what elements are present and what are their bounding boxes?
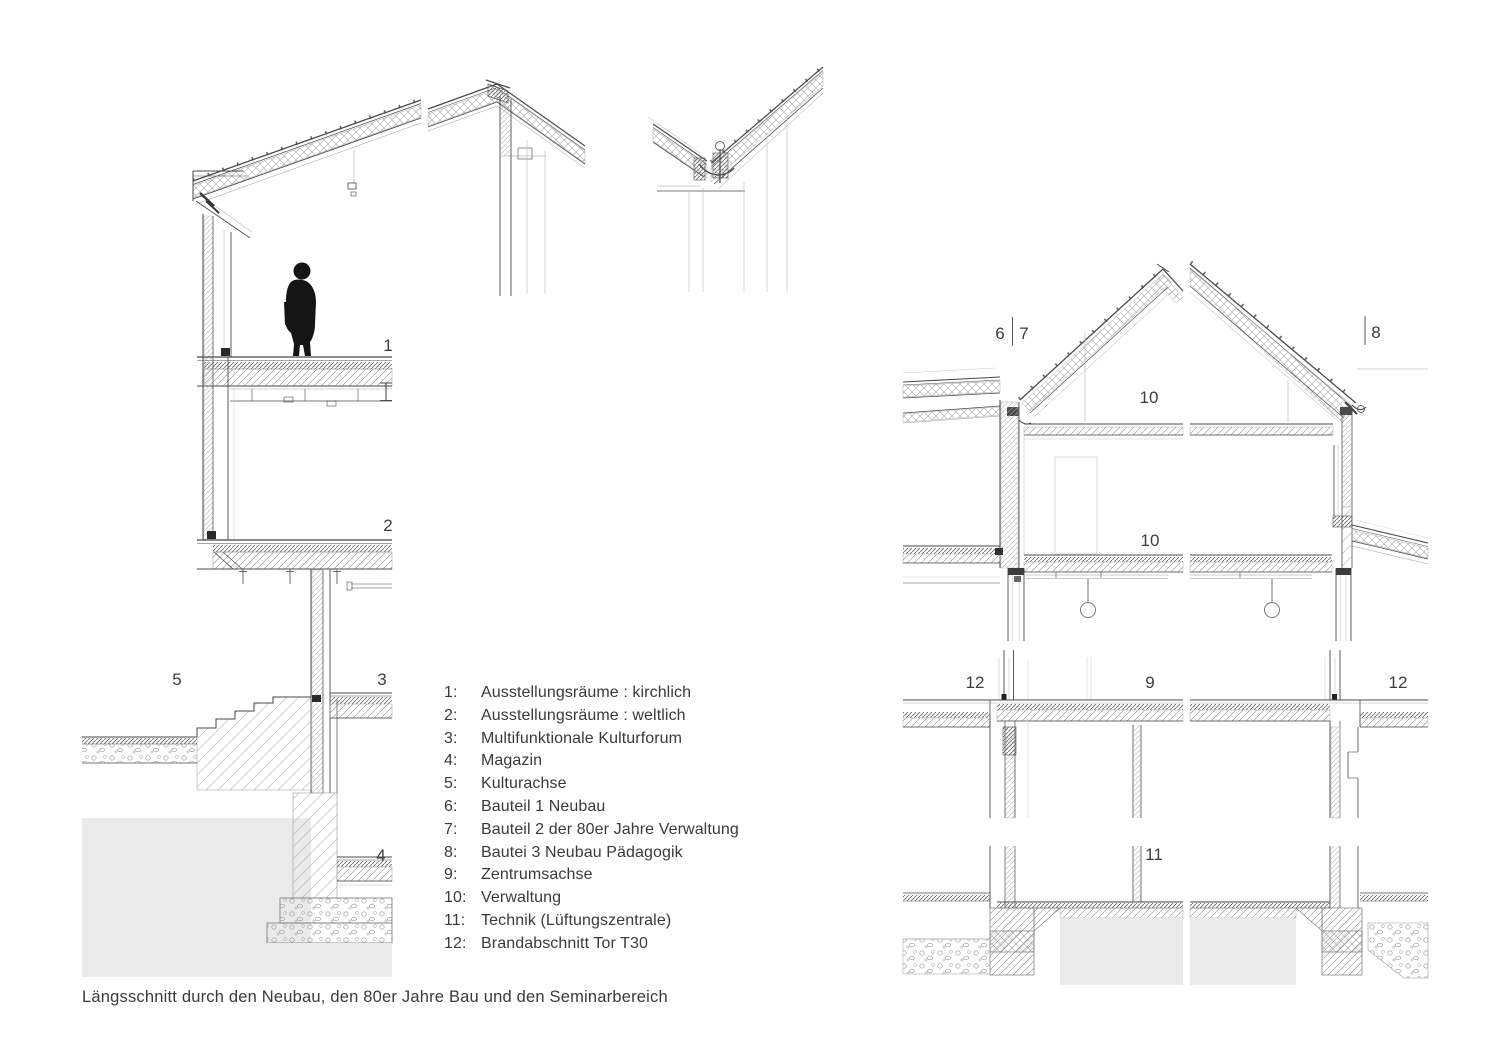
section-drawing: 1 2 3 4 5 6 7 8 10 10 12 9 12 11 (0, 0, 1500, 1048)
section-brandabschnitt (1190, 650, 1428, 985)
pendant-lamp (1265, 603, 1280, 618)
legend-item: 6:Bauteil 1 Neubau (444, 796, 739, 819)
person-silhouette (284, 263, 316, 357)
legend-item-number: 9: (444, 864, 481, 887)
legend-item: 9:Zentrumsachse (444, 864, 739, 887)
section-marker-9: 9 (1145, 673, 1154, 692)
section-marker-8: 8 (1371, 323, 1380, 342)
legend-item-label: Verwaltung (481, 889, 561, 906)
legend-item-label: Kulturachse (481, 775, 567, 792)
legend-item-label: Multifunktionale Kulturforum (481, 730, 682, 747)
legend-item: 10:Verwaltung (444, 887, 739, 910)
legend-item-number: 7: (444, 819, 481, 842)
figure-caption: Längsschnitt durch den Neubau, den 80er … (82, 988, 668, 1007)
valley-detail (648, 66, 823, 292)
legend-item-label: Ausstellungsräume : weltlich (481, 707, 686, 724)
section-marker-10-room: 10 (1141, 531, 1160, 550)
section-bauteil-3 (1190, 262, 1428, 641)
legend-item-label: Magazin (481, 752, 542, 769)
legend-item-number: 2: (444, 705, 481, 728)
legend-item-number: 6: (444, 796, 481, 819)
legend-item: 1:Ausstellungsräume : kirchlich (444, 682, 739, 705)
legend-item-label: Technik (Lüftungszentrale) (481, 912, 671, 929)
pendant-lamp (1081, 603, 1096, 618)
legend-item-number: 3: (444, 728, 481, 751)
legend-item: 3:Multifunktionale Kulturforum (444, 728, 739, 751)
section-marker-3: 3 (377, 670, 386, 689)
section-marker-4: 4 (376, 846, 385, 865)
section-marker-11: 11 (1145, 845, 1163, 864)
section-markers: 1 2 3 4 5 6 7 8 10 10 12 9 12 11 (172, 316, 1407, 865)
ridge-detail (428, 80, 585, 296)
section-marker-5: 5 (172, 670, 181, 689)
section-marker-7: 7 (1019, 324, 1028, 343)
legend-item-number: 8: (444, 842, 481, 865)
legend-item-number: 12: (444, 933, 481, 956)
legend-item-number: 4: (444, 750, 481, 773)
legend-item-label: Ausstellungsräume : kirchlich (481, 684, 691, 701)
legend-item: 5:Kulturachse (444, 773, 739, 796)
legend-item: 8:Bautei 3 Neubau Pädagogik (444, 842, 739, 865)
legend-item: 4:Magazin (444, 750, 739, 773)
section-marker-10-attic: 10 (1140, 388, 1159, 407)
legend-item-number: 11: (444, 910, 481, 933)
legend-item-label: Bautei 3 Neubau Pädagogik (481, 844, 683, 861)
legend-item: 7:Bauteil 2 der 80er Jahre Verwaltung (444, 819, 739, 842)
legend: 1:Ausstellungsräume : kirchlich 2:Ausste… (444, 682, 739, 956)
architectural-section-figure: 1 2 3 4 5 6 7 8 10 10 12 9 12 11 1:Ausst… (0, 0, 1500, 1048)
legend-item-label: Bauteil 1 Neubau (481, 798, 605, 815)
legend-item-number: 5: (444, 773, 481, 796)
section-zentrumsachse (903, 650, 1183, 985)
section-marker-12-left: 12 (966, 673, 985, 692)
legend-item-number: 10: (444, 887, 481, 910)
legend-item-label: Brandabschnitt Tor T30 (481, 935, 648, 952)
legend-item-label: Bauteil 2 der 80er Jahre Verwaltung (481, 821, 739, 838)
legend-item: 2:Ausstellungsräume : weltlich (444, 705, 739, 728)
section-marker-1: 1 (383, 336, 392, 355)
section-marker-2: 2 (383, 516, 392, 535)
legend-item: 11:Technik (Lüftungszentrale) (444, 910, 739, 933)
legend-item: 12:Brandabschnitt Tor T30 (444, 933, 739, 956)
legend-item-number: 1: (444, 682, 481, 705)
left-section-neubau (82, 99, 421, 977)
section-marker-6: 6 (995, 324, 1004, 343)
section-marker-12-right: 12 (1389, 673, 1408, 692)
section-bauteil-1-2 (903, 264, 1183, 641)
legend-item-label: Zentrumsachse (481, 866, 593, 883)
